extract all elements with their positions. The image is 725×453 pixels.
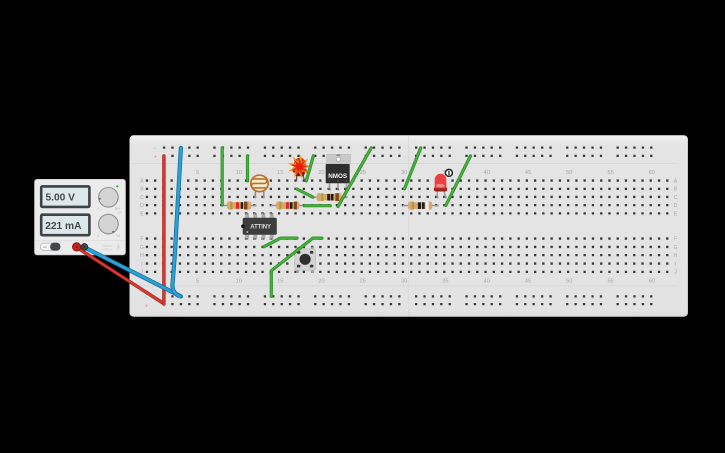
svg-text:30: 30 (401, 279, 407, 285)
svg-text:221 mA: 221 mA (45, 221, 82, 232)
svg-text:NMOS: NMOS (328, 173, 347, 180)
svg-text:25: 25 (360, 170, 366, 176)
svg-text:45: 45 (525, 279, 531, 285)
svg-text:20: 20 (318, 279, 324, 285)
svg-text:5: 5 (196, 170, 199, 176)
svg-text:55: 55 (607, 170, 613, 176)
svg-text:60: 60 (649, 170, 655, 176)
svg-text:35: 35 (442, 279, 448, 285)
svg-text:10: 10 (236, 279, 242, 285)
svg-text:C: C (674, 195, 678, 201)
svg-text:F: F (140, 237, 143, 243)
svg-text:H: H (140, 253, 144, 259)
svg-text:10: 10 (236, 170, 242, 176)
svg-text:60: 60 (649, 279, 655, 285)
svg-text:I: I (141, 261, 142, 267)
svg-text:5: 5 (196, 279, 199, 285)
svg-text:SUPPLY: SUPPLY (101, 247, 113, 251)
svg-text:5.00 V: 5.00 V (46, 193, 76, 204)
svg-text:1 A: 1 A (117, 210, 121, 214)
svg-text:30: 30 (401, 170, 407, 176)
svg-text:F: F (674, 237, 677, 243)
svg-text:15: 15 (277, 279, 283, 285)
svg-text:20: 20 (318, 170, 324, 176)
svg-text:50: 50 (566, 279, 572, 285)
svg-text:5 A: 5 A (116, 233, 120, 237)
svg-text:D: D (140, 203, 144, 209)
svg-text:G: G (140, 245, 144, 251)
svg-text:40: 40 (484, 170, 490, 176)
svg-text:30 V: 30 V (115, 207, 121, 211)
svg-text:40: 40 (484, 279, 490, 285)
svg-text:45: 45 (525, 170, 531, 176)
svg-text:D: D (674, 203, 678, 209)
svg-text:G: G (674, 245, 678, 251)
svg-text:on: on (43, 246, 47, 249)
svg-text:55: 55 (607, 279, 613, 285)
svg-text:−: − (153, 146, 157, 152)
svg-text:50: 50 (566, 170, 572, 176)
svg-text:C: C (140, 195, 144, 201)
svg-text:15: 15 (277, 170, 283, 176)
svg-text:ATTINY: ATTINY (250, 225, 271, 231)
svg-text:I: I (675, 261, 676, 267)
svg-text:H: H (674, 253, 678, 259)
svg-text:25: 25 (360, 279, 366, 285)
